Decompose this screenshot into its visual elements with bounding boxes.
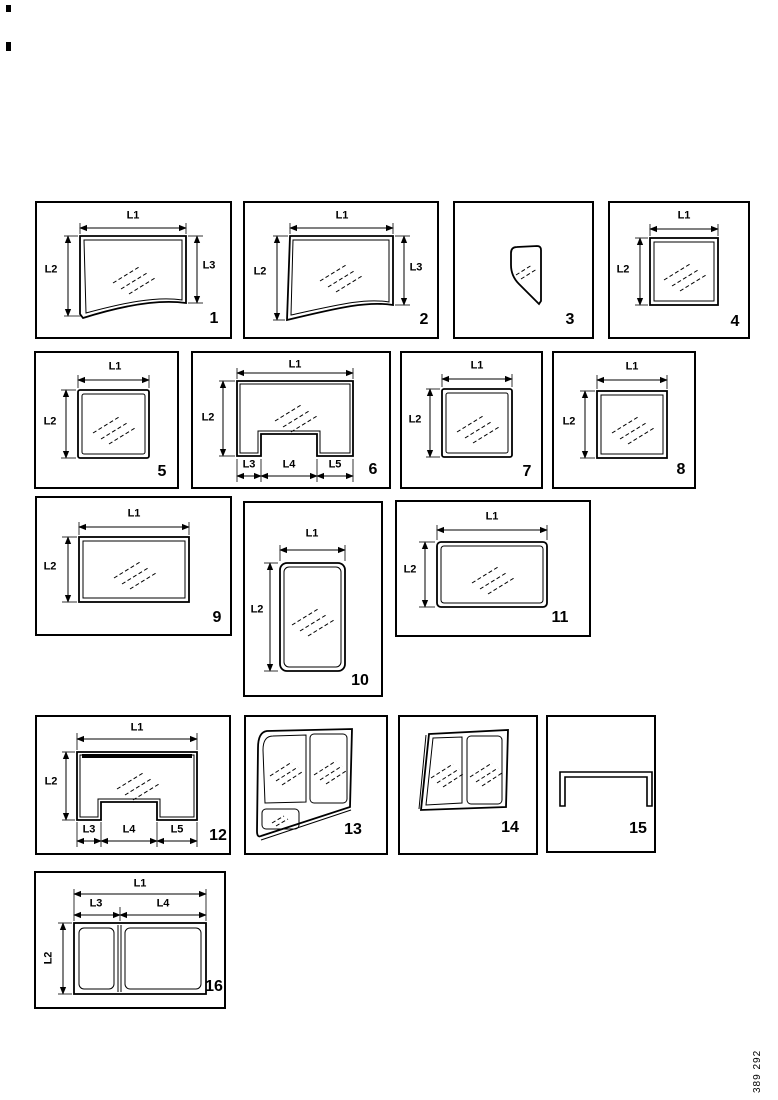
dim-label-l3: L3	[83, 825, 96, 836]
panel-number: 2	[420, 312, 429, 328]
dim-label-l3: L3	[90, 899, 103, 910]
dim-label-l1: L1	[131, 723, 144, 734]
panel-number: 15	[629, 821, 647, 837]
dim-label-l5: L5	[171, 825, 184, 836]
panel-4: L1 L2 4	[608, 201, 750, 339]
dim-label-l3: L3	[203, 261, 216, 272]
panel-number: 13	[344, 822, 362, 838]
panel-16: L1 L3 L4 L2 16	[34, 871, 226, 1009]
door-glass-sloped-bottom-drawing	[245, 203, 437, 337]
dim-label-l5: L5	[329, 460, 342, 471]
panel-number: 5	[158, 464, 167, 480]
panel-1: L1 L2 L3 1	[35, 201, 232, 339]
dim-label-l1: L1	[109, 362, 122, 373]
dim-label-l2: L2	[45, 777, 58, 788]
panel-number: 4	[731, 314, 740, 330]
dim-label-l4: L4	[157, 899, 170, 910]
dim-label-l1: L1	[486, 512, 499, 523]
dim-label-l1: L1	[128, 509, 141, 520]
dim-label-l1: L1	[289, 360, 302, 371]
dim-label-l2: L2	[44, 417, 57, 428]
panel-number: 10	[351, 673, 369, 689]
panel-number: 11	[552, 610, 569, 626]
panel-7: L1 L2 7	[400, 351, 543, 489]
panel-14: 14	[398, 715, 538, 855]
panel-number: 14	[501, 820, 519, 836]
panel-13: 13	[244, 715, 388, 855]
dim-label-l1: L1	[127, 211, 140, 222]
panel-9: L1 L2 9	[35, 496, 232, 636]
dim-label-l2: L2	[563, 417, 576, 428]
dim-label-l2: L2	[44, 952, 55, 965]
panel-number: 1	[210, 311, 219, 327]
panel-2: L1 L2 L3 2	[243, 201, 439, 339]
panel-3: 3	[453, 201, 594, 339]
dim-label-l2: L2	[254, 267, 267, 278]
square-glass-drawing	[402, 353, 541, 487]
dim-label-l3: L3	[410, 263, 423, 274]
dim-label-l1: L1	[626, 362, 639, 373]
dim-label-l2: L2	[45, 265, 58, 276]
dim-label-l2: L2	[251, 605, 264, 616]
registration-mark	[6, 5, 11, 12]
dim-label-l1: L1	[678, 211, 691, 222]
panel-number: 8	[677, 462, 686, 478]
panel-number: 7	[523, 464, 532, 480]
dim-label-l2: L2	[404, 565, 417, 576]
panel-number: 6	[369, 462, 378, 478]
dim-label-l2: L2	[617, 265, 630, 276]
dim-label-l2: L2	[44, 562, 57, 573]
panel-number: 3	[566, 312, 575, 328]
panel-number: 12	[209, 828, 227, 844]
panel-11: L1 L2 11	[395, 500, 591, 637]
dim-label-l1: L1	[134, 879, 147, 890]
panel-5: L1 L2 5	[34, 351, 179, 489]
dim-label-l2: L2	[202, 413, 215, 424]
panel-8: L1 L2 8	[552, 351, 696, 489]
panel-number: 16	[205, 979, 223, 995]
double-pane-window-drawing	[36, 873, 224, 1007]
dim-label-l1: L1	[336, 211, 349, 222]
dim-label-l1: L1	[471, 361, 484, 372]
dim-label-l2: L2	[409, 415, 422, 426]
registration-mark	[6, 42, 11, 51]
panel-15: 15	[546, 715, 656, 853]
square-glass-drawing	[36, 353, 177, 487]
dim-label-l4: L4	[123, 825, 136, 836]
dim-label-l1: L1	[306, 529, 319, 540]
catalog-page: L1 L2 L3 1 L1 L2 L3 2 3	[0, 0, 778, 1100]
panel-12: L1 L2 L3 L4 L5 12	[35, 715, 231, 855]
figure-number: 389 292	[752, 1050, 763, 1093]
door-glass-sloped-bottom-drawing	[37, 203, 230, 337]
panel-number: 9	[213, 610, 222, 626]
panel-10: L1 L2 10	[243, 501, 383, 697]
dim-label-l4: L4	[283, 460, 296, 471]
sliding-window-assembly-sloped-drawing	[246, 717, 386, 853]
panel-6: L1 L2 L3 L4 L5 6	[191, 351, 391, 489]
dim-label-l3: L3	[243, 460, 256, 471]
square-glass-drawing	[610, 203, 748, 337]
